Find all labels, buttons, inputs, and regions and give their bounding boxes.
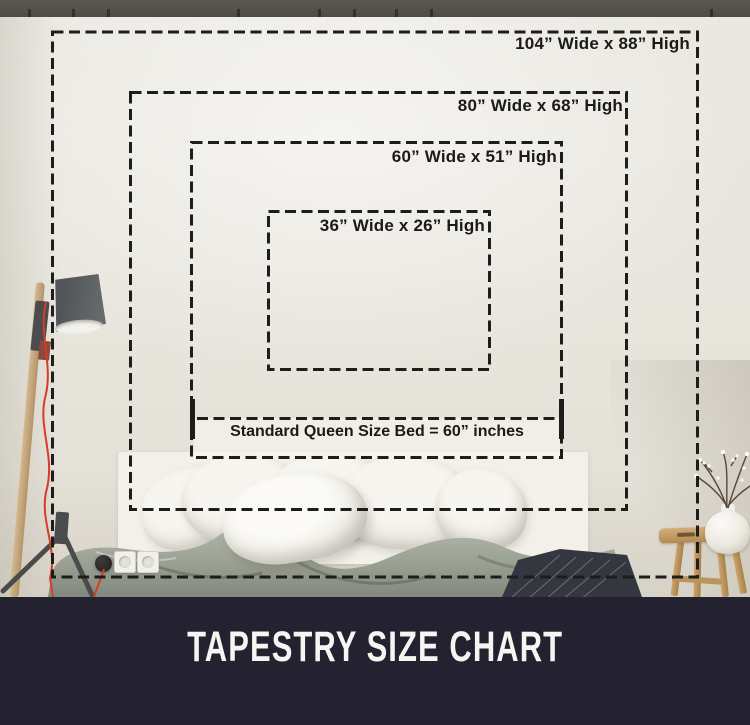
bedroom-photo: 104” Wide x 88” High 80” Wide x 68” High… bbox=[0, 0, 750, 597]
bed-reference-label: Standard Queen Size Bed = 60” inches bbox=[194, 423, 560, 441]
size-label-60: 60” Wide x 51” High bbox=[392, 147, 557, 167]
size-label-36: 36” Wide x 26” High bbox=[320, 216, 485, 236]
size-overlay bbox=[0, 0, 750, 597]
size-rect-60 bbox=[192, 143, 562, 458]
caption-band: TAPESTRY SIZE CHART bbox=[0, 597, 750, 725]
size-label-104: 104” Wide x 88” High bbox=[515, 34, 690, 54]
size-label-80: 80” Wide x 68” High bbox=[458, 96, 623, 116]
page-title: TAPESTRY SIZE CHART bbox=[187, 623, 563, 725]
tapestry-size-chart: 104” Wide x 88” High 80” Wide x 68” High… bbox=[0, 0, 750, 725]
